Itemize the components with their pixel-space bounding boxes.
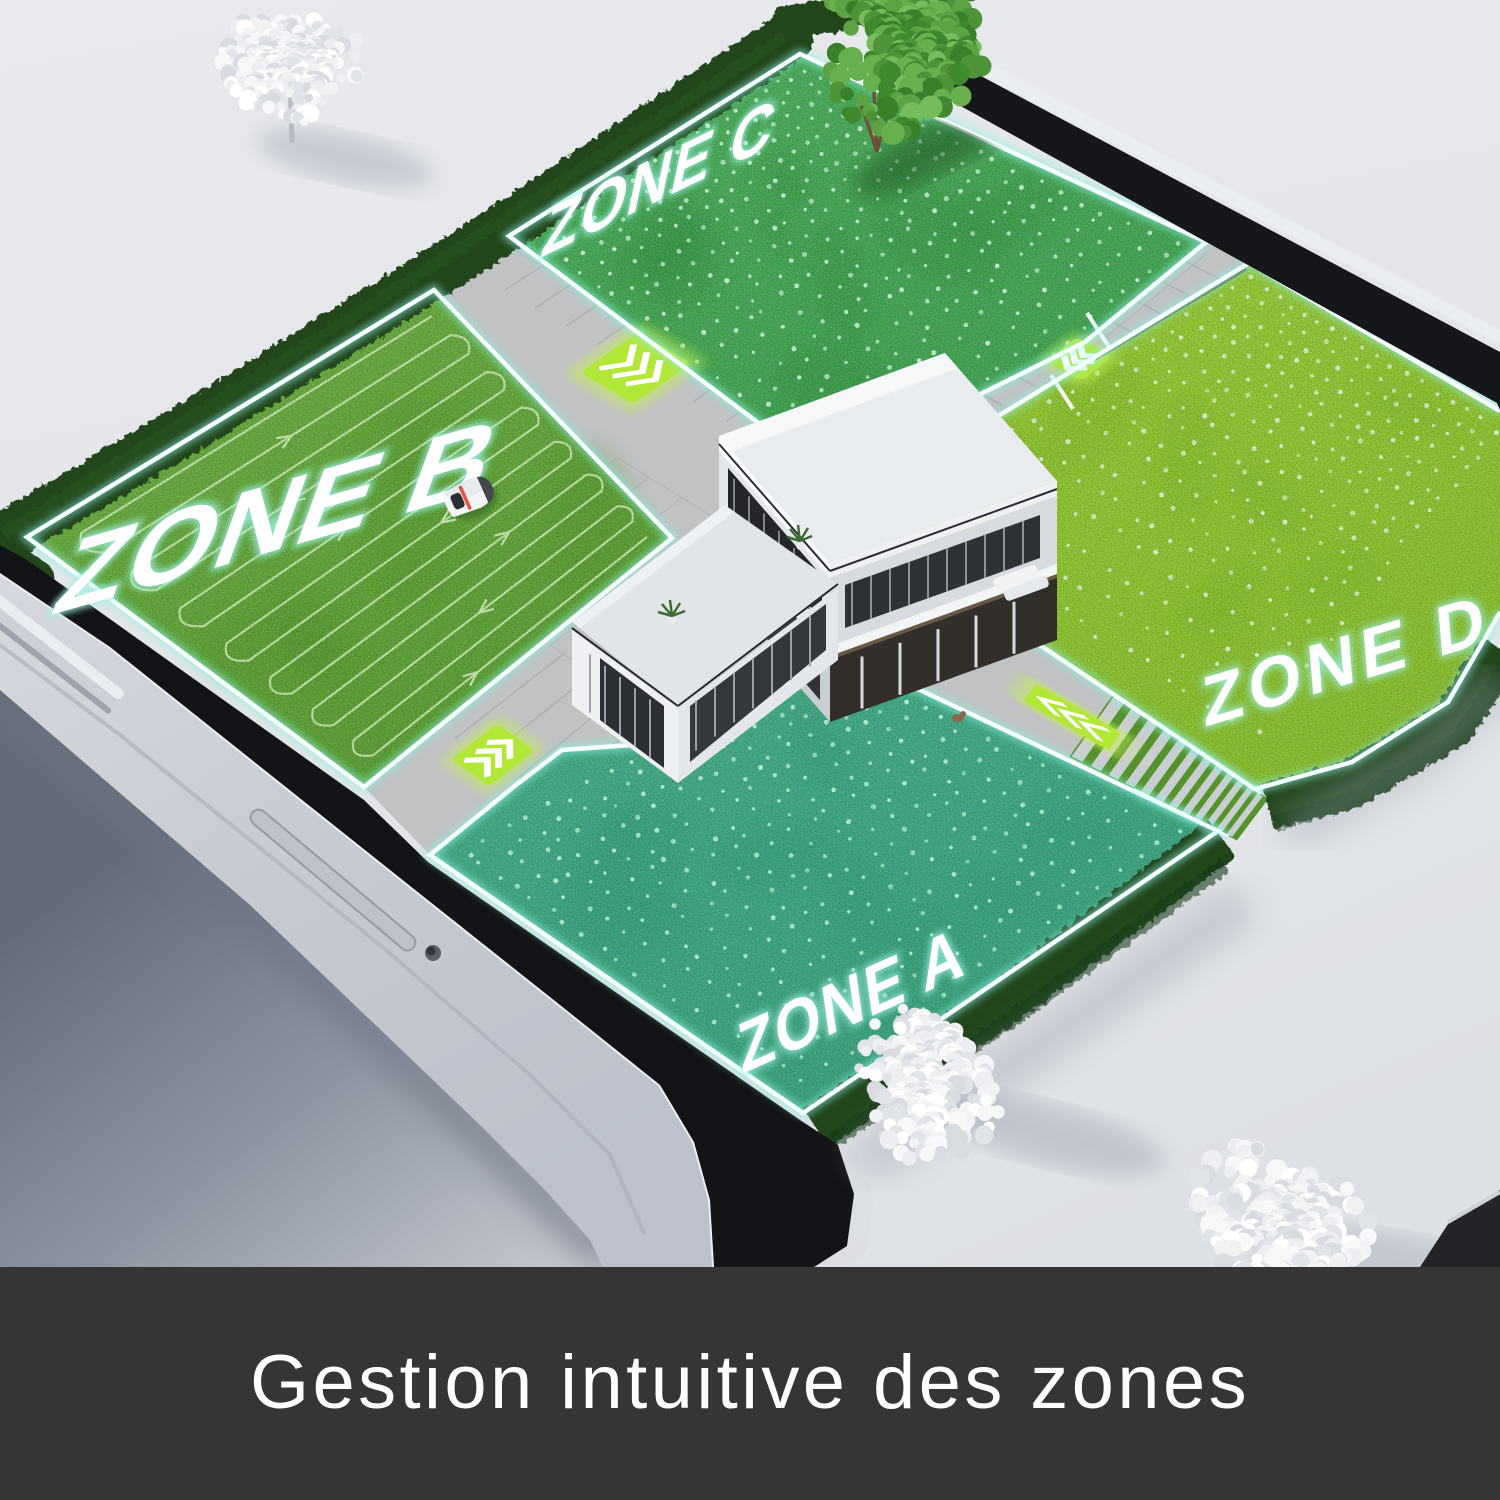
svg-text:Gestion intuitive des zones: Gestion intuitive des zones (250, 1340, 1250, 1425)
